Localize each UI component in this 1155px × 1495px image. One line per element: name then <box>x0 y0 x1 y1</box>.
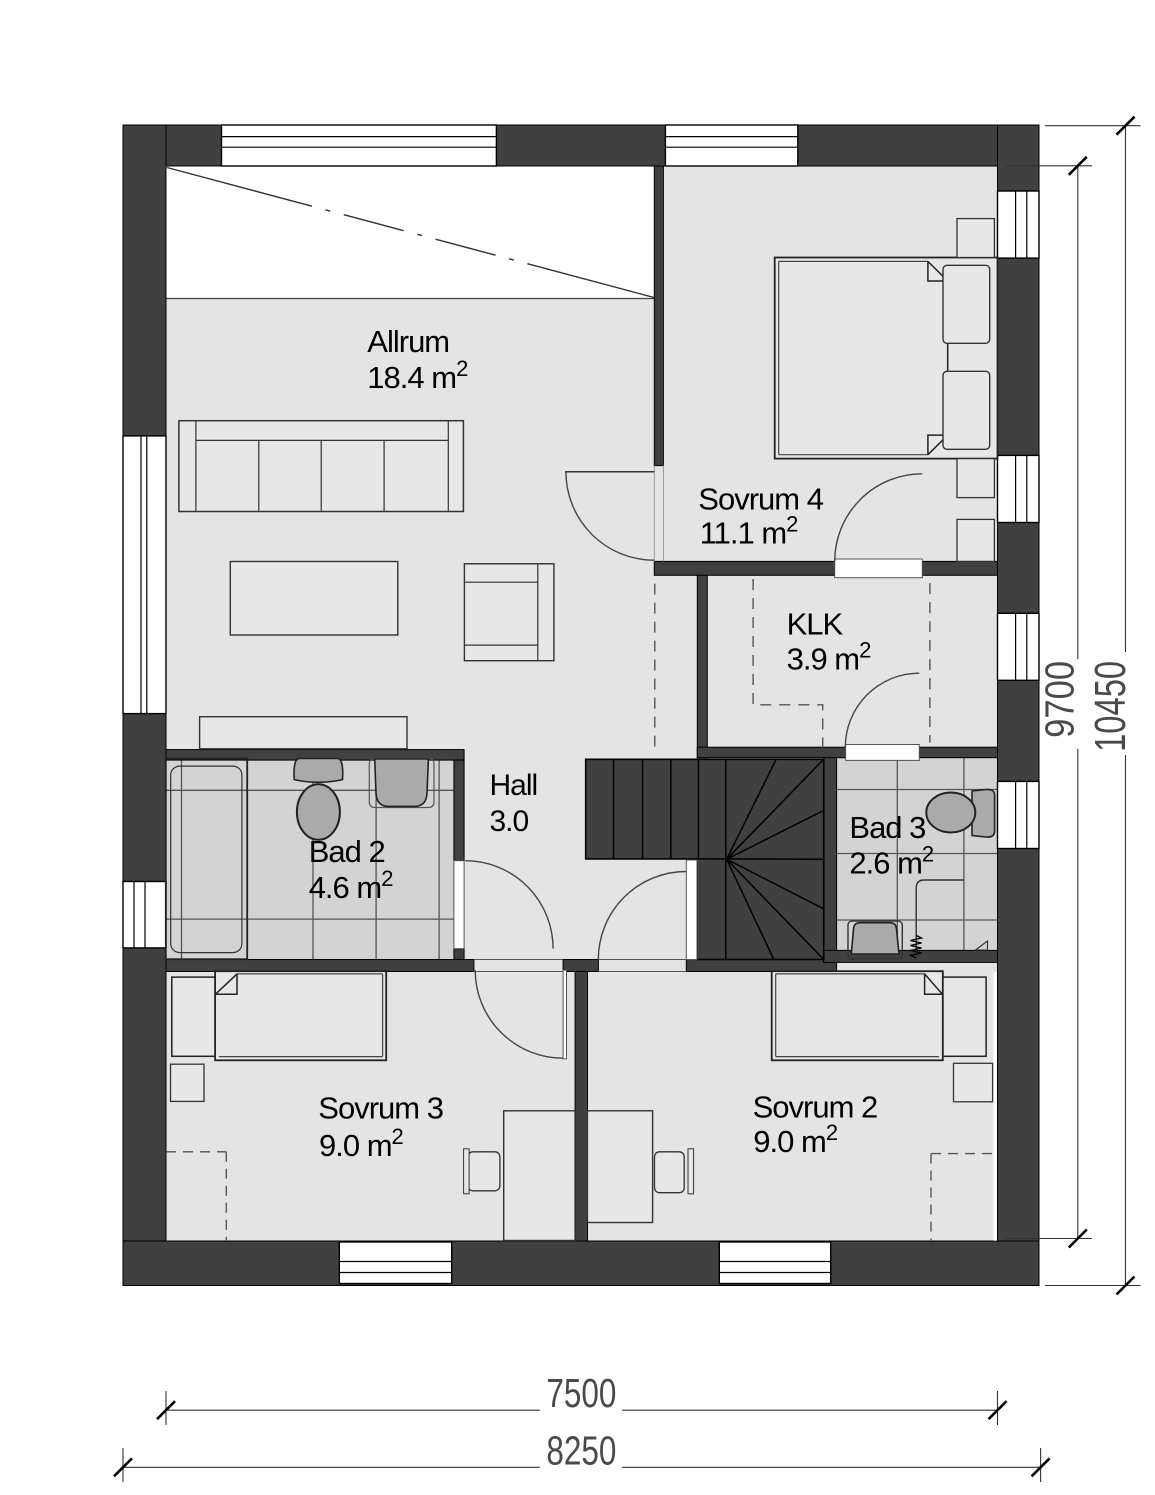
svg-text:Bad 2: Bad 2 <box>309 834 385 869</box>
svg-text:9700: 9700 <box>1037 661 1083 738</box>
svg-text:9.0 m2: 9.0 m2 <box>319 1124 404 1163</box>
svg-text:3.0: 3.0 <box>490 805 529 838</box>
svg-text:Bad 3: Bad 3 <box>849 810 925 845</box>
svg-text:7500: 7500 <box>546 1370 616 1416</box>
svg-text:11.1 m2: 11.1 m2 <box>700 511 798 550</box>
svg-text:2.6 m2: 2.6 m2 <box>849 842 934 881</box>
svg-text:9.0 m2: 9.0 m2 <box>753 1120 838 1159</box>
svg-text:4.6 m2: 4.6 m2 <box>309 866 394 905</box>
svg-text:18.4 m2: 18.4 m2 <box>367 356 468 395</box>
svg-text:Hall: Hall <box>490 769 538 802</box>
svg-text:10450: 10450 <box>1086 661 1135 752</box>
svg-text:3.9 m2: 3.9 m2 <box>787 638 872 677</box>
svg-text:Allrum: Allrum <box>367 324 449 359</box>
svg-text:Sovrum 2: Sovrum 2 <box>753 1090 878 1125</box>
svg-text:KLK: KLK <box>787 606 844 641</box>
svg-text:8250: 8250 <box>546 1427 616 1473</box>
svg-text:Sovrum 3: Sovrum 3 <box>318 1090 443 1125</box>
svg-text:Sovrum 4: Sovrum 4 <box>698 482 823 517</box>
